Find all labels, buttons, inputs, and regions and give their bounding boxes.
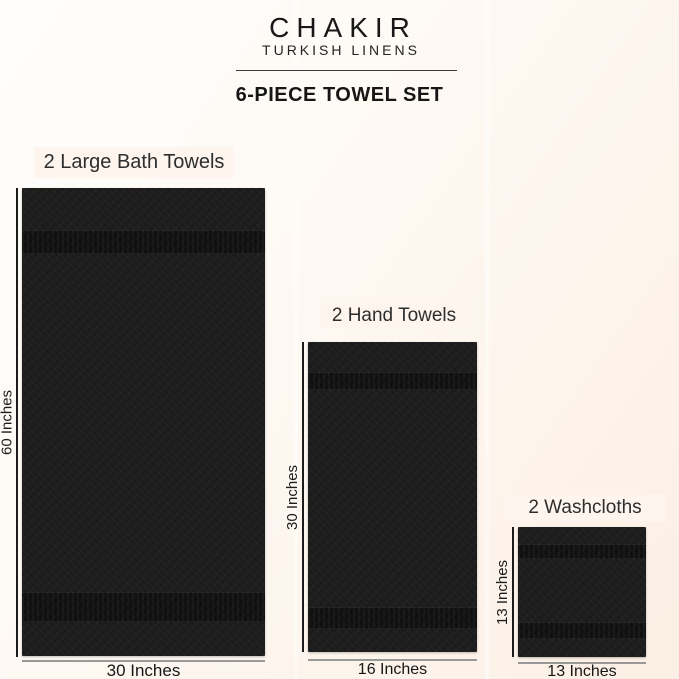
washcloth-height-measure-line: [512, 527, 514, 657]
washcloth-bottom-border: [518, 622, 646, 639]
hand-width-label: 16 Inches: [308, 661, 477, 679]
bath-towel-bottom-border: [22, 592, 265, 622]
product-title: 6-PIECE TOWEL SET: [0, 84, 679, 107]
washcloths-label-text: 2 Washcloths: [528, 497, 641, 519]
hand-height-label: 30 Inches: [284, 342, 301, 652]
bath-towel-image: [22, 188, 265, 656]
washcloth-width-label: 13 Inches: [518, 663, 646, 679]
product-infographic: CHAKIR TURKISH LINENS 6-PIECE TOWEL SET …: [0, 0, 679, 679]
header-divider: [236, 70, 457, 71]
bath-towels-label: 2 Large Bath Towels: [34, 147, 234, 178]
washcloth-height-label: 13 Inches: [494, 527, 511, 657]
washcloths-label: 2 Washcloths: [504, 495, 666, 521]
bath-height-measure-line: [16, 188, 18, 657]
bath-towel-top-border: [22, 230, 265, 254]
bath-towels-label-text: 2 Large Bath Towels: [44, 151, 225, 174]
hand-towel-top-border: [308, 372, 477, 390]
brand-tagline: TURKISH LINENS: [0, 42, 679, 58]
hand-towel-image: [308, 342, 477, 652]
bath-width-label: 30 Inches: [22, 661, 265, 679]
washcloth-image: [518, 527, 646, 657]
hand-towels-label: 2 Hand Towels: [320, 303, 468, 328]
hand-towel-bottom-border: [308, 607, 477, 629]
hand-height-measure-line: [302, 342, 304, 652]
washcloth-top-border: [518, 544, 646, 559]
bath-height-label: 60 Inches: [0, 188, 15, 656]
hand-towels-label-text: 2 Hand Towels: [332, 305, 456, 327]
brand-logo: CHAKIR: [0, 12, 679, 44]
